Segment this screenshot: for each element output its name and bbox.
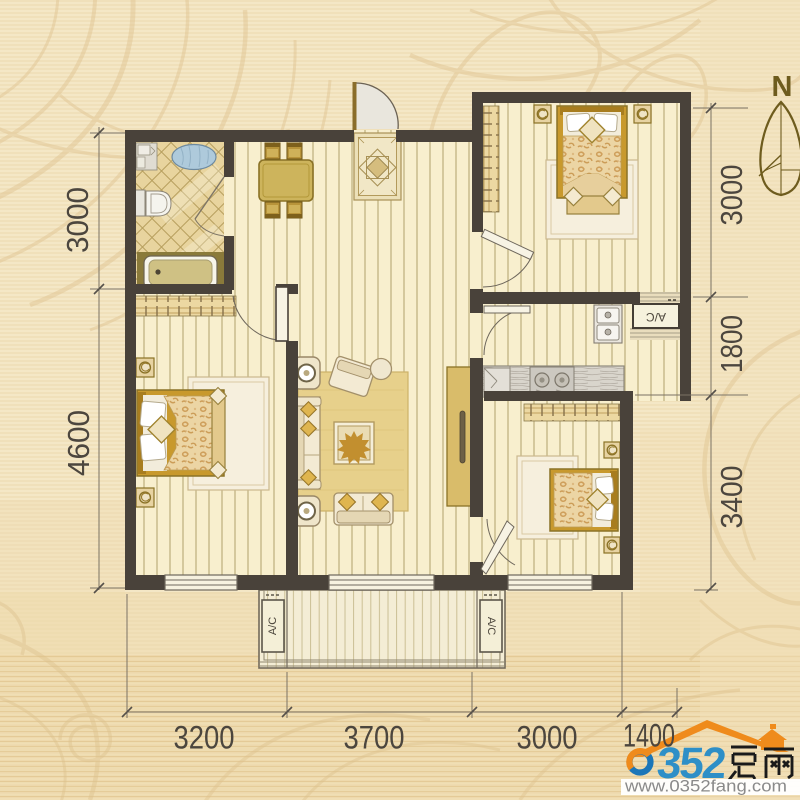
svg-text:N: N	[772, 71, 793, 103]
svg-text:3200: 3200	[174, 719, 235, 755]
svg-text:1400: 1400	[623, 717, 675, 753]
svg-text:1800: 1800	[714, 315, 749, 373]
svg-text:3400: 3400	[714, 466, 749, 529]
svg-text:A/C: A/C	[485, 617, 497, 635]
svg-text:A/C: A/C	[267, 617, 279, 635]
svg-text:A/C: A/C	[646, 310, 666, 324]
svg-text:4600: 4600	[61, 410, 96, 476]
svg-text:3000: 3000	[517, 719, 578, 755]
svg-text:3000: 3000	[60, 187, 95, 253]
svg-text:3000: 3000	[714, 165, 749, 226]
svg-text:www.0352fang.com: www.0352fang.com	[624, 778, 787, 796]
svg-text:3700: 3700	[344, 719, 405, 755]
